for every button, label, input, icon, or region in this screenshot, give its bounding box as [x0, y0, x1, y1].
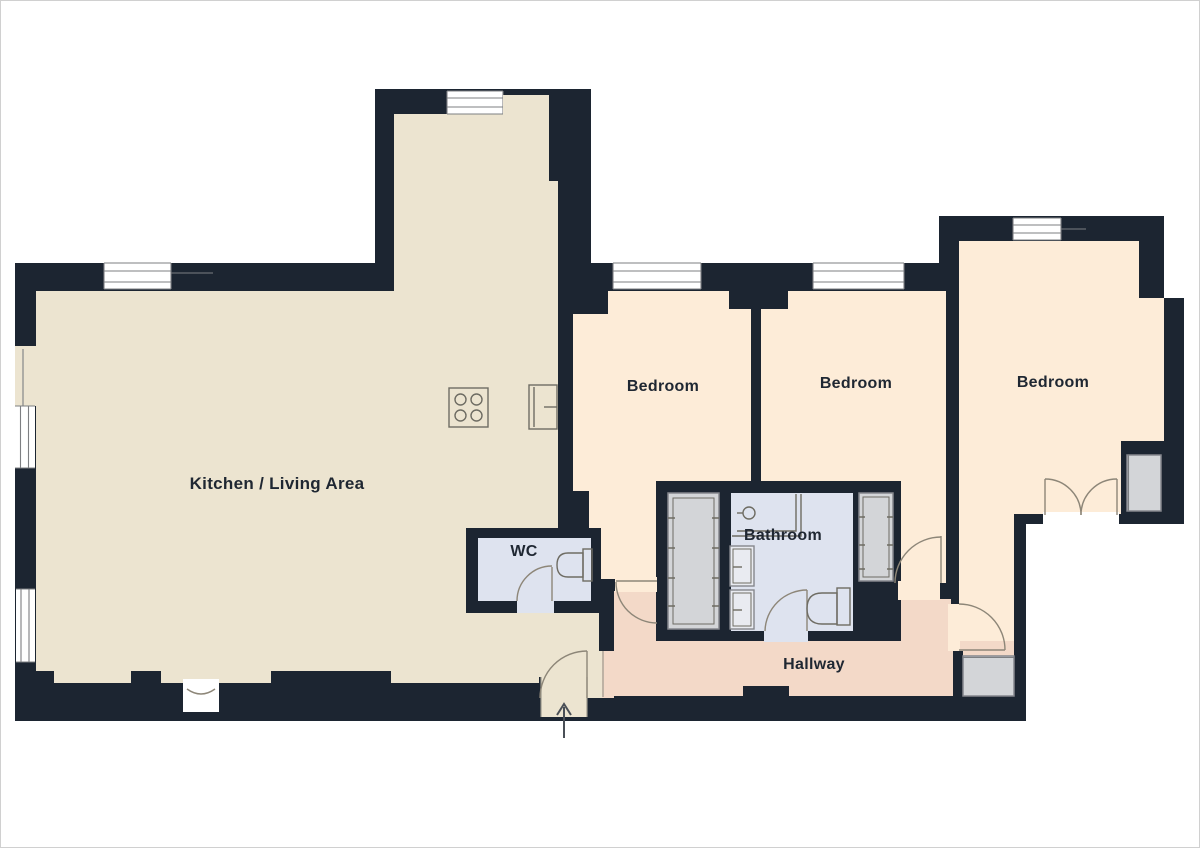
window-icon: [813, 263, 904, 289]
wc-label: WC: [510, 543, 537, 560]
floorplan-page: Kitchen / Living Area WC Bathroom Hallwa…: [0, 0, 1200, 848]
closet-icon: [963, 656, 1014, 696]
bedroom-right-label: Bedroom: [1017, 374, 1089, 391]
bathroom-label: Bathroom: [744, 527, 822, 544]
window-icon: [16, 589, 35, 662]
hallway-label: Hallway: [783, 656, 845, 673]
bathroom-cabinet-icon: [730, 590, 754, 629]
hallway-kitchen-opening: [602, 650, 614, 698]
fireplace-niche-icon: [183, 679, 219, 712]
wardrobe-icon: [859, 493, 893, 581]
wall-stub-junction: [599, 579, 614, 651]
wall-stub-closet: [953, 651, 963, 699]
bedroom-middle-label: Bedroom: [820, 375, 892, 392]
closet-icon: [1127, 455, 1161, 511]
bedroom-left-label: Bedroom: [627, 378, 699, 395]
floorplan-drawing: Kitchen / Living Area WC Bathroom Hallwa…: [1, 1, 1200, 848]
kitchen-living-label: Kitchen / Living Area: [190, 474, 365, 493]
bathroom-cabinet-icon: [730, 546, 754, 586]
window-icon: [15, 346, 36, 468]
wardrobe-icon: [668, 493, 719, 629]
wall-stub-bedroom-divider: [729, 291, 788, 309]
wall-stub-above-wc: [559, 491, 589, 528]
window-icon: [613, 263, 701, 289]
